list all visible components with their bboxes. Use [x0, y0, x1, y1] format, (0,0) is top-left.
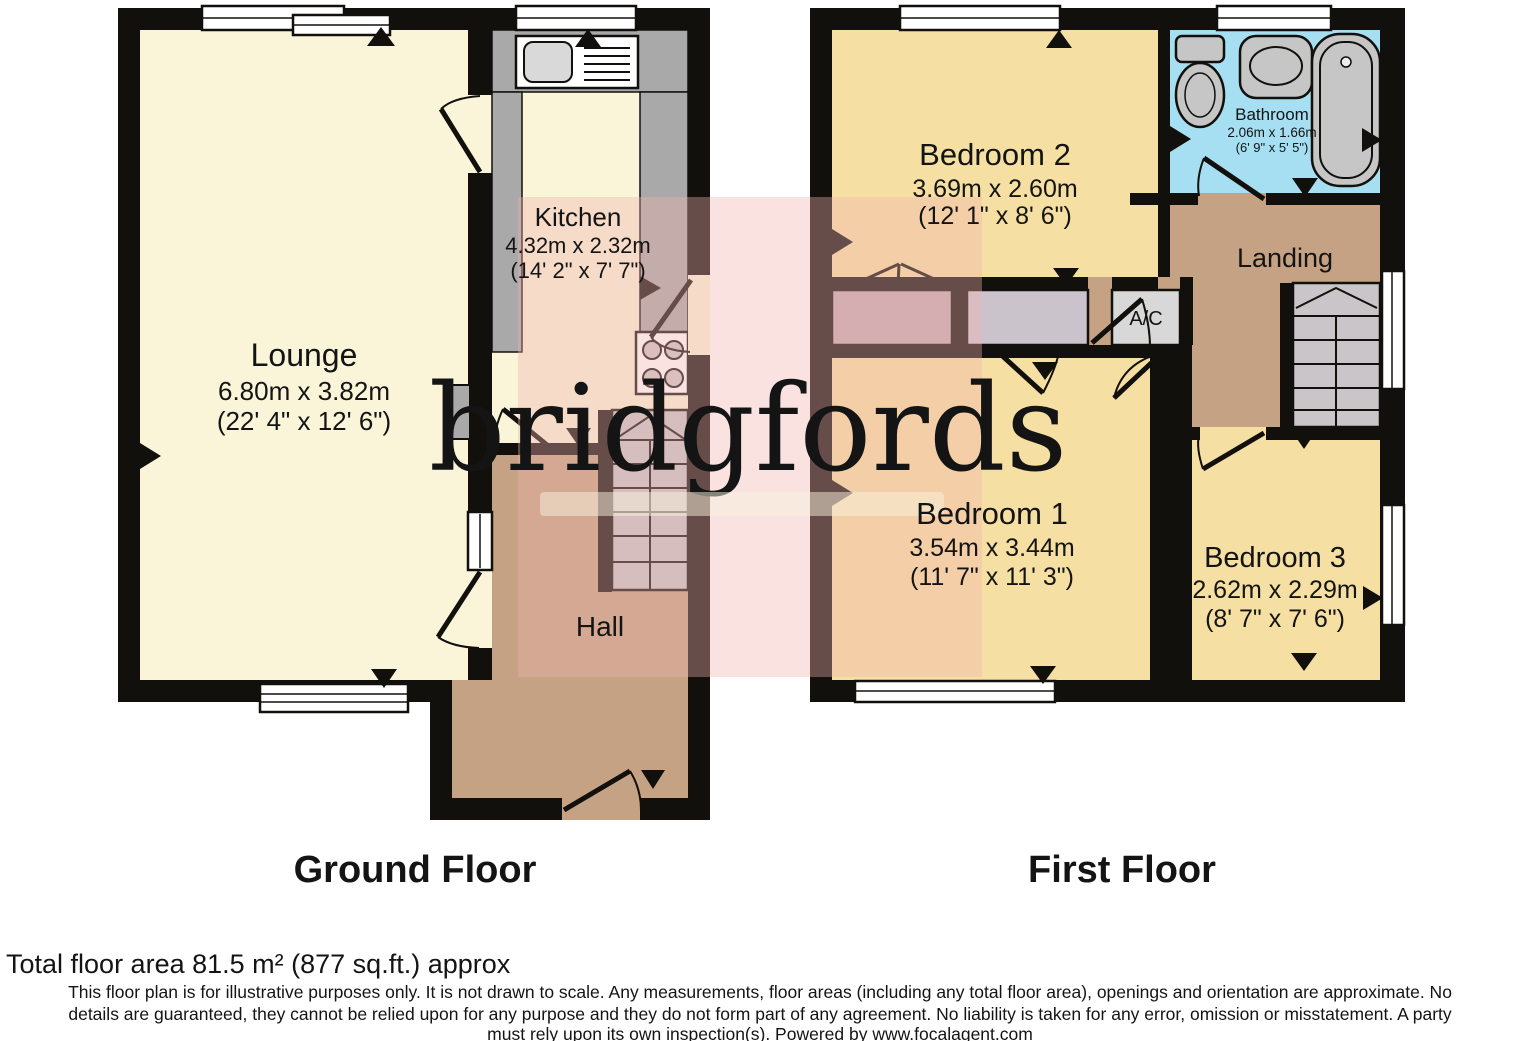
bedroom1-top-wall	[1165, 345, 1192, 358]
disclaimer-line-2: details are guaranteed, they cannot be r…	[68, 1004, 1452, 1024]
window	[855, 681, 1055, 702]
bedroom3-imperial: (8' 7" x 7' 6")	[1205, 605, 1345, 633]
closet-wall	[1112, 277, 1158, 290]
lounge-label: Lounge	[251, 337, 358, 373]
ground-floor-title: Ground Floor	[294, 849, 537, 891]
window	[1217, 6, 1331, 30]
floor-plan-page: bridgfords Lounge 6.80m x 3.82m (22' 4" …	[0, 0, 1520, 1041]
hall-label: Hall	[576, 611, 624, 642]
ac-label: A/C	[1129, 308, 1162, 330]
bedroom3-metric: 2.62m x 2.29m	[1192, 576, 1357, 604]
watermark-underline	[540, 492, 944, 516]
disclaimer-line-3: must rely upon its own inspection(s). Po…	[487, 1024, 1033, 1041]
window	[1382, 271, 1404, 389]
kitchen-imperial: (14' 2" x 7' 7")	[510, 258, 645, 283]
bedroom1-metric: 3.54m x 3.44m	[909, 534, 1074, 562]
window	[1382, 505, 1404, 625]
window	[900, 6, 1060, 30]
bedroom1-label: Bedroom 1	[916, 496, 1068, 531]
bathroom-metric: 2.06m x 1.66m	[1227, 125, 1316, 140]
watermark-text: bridgfords	[429, 360, 1068, 499]
landing-label: Landing	[1237, 243, 1333, 273]
lounge-metric: 6.80m x 3.82m	[218, 376, 390, 406]
window	[516, 6, 636, 30]
kitchen-sink-icon	[516, 36, 638, 88]
kitchen-metric: 4.32m x 2.32m	[505, 233, 651, 258]
kitchen-counter-left	[492, 92, 522, 352]
bedroom2-label: Bedroom 2	[919, 137, 1071, 172]
bedroom1-bedroom3-wall	[1150, 358, 1192, 680]
floor-plan-drawing: bridgfords Lounge 6.80m x 3.82m (22' 4" …	[0, 0, 1520, 1041]
bedroom1-top-wall	[1062, 345, 1120, 358]
window	[293, 15, 390, 35]
closet-wall	[1180, 277, 1193, 345]
corridor-floor	[1158, 277, 1180, 290]
window	[260, 684, 408, 712]
total-floor-area: Total floor area 81.5 m² (877 sq.ft.) ap…	[6, 949, 511, 979]
sink-icon	[1240, 36, 1312, 98]
bathroom-label: Bathroom	[1235, 105, 1309, 124]
staircase-first	[1293, 283, 1380, 427]
bedroom1-imperial: (11' 7" x 11' 3")	[910, 563, 1074, 591]
bedroom2-metric: 3.69m x 2.60m	[912, 175, 1077, 203]
bath-icon	[1312, 34, 1380, 186]
kitchen-label: Kitchen	[535, 202, 622, 232]
disclaimer-line-1: This floor plan is for illustrative purp…	[68, 982, 1452, 1002]
wardrobe	[967, 290, 1088, 345]
first-floor-title: First Floor	[1028, 849, 1216, 891]
stair-wall	[1280, 283, 1293, 427]
bathroom-imperial: (6' 9" x 5' 5")	[1236, 140, 1309, 155]
lounge-imperial: (22' 4" x 12' 6")	[217, 406, 391, 436]
door-opening	[562, 798, 640, 820]
bedroom2-imperial: (12' 1" x 8' 6")	[918, 202, 1072, 230]
bedroom3-label: Bedroom 3	[1204, 542, 1346, 574]
bedroom2-bathroom-wall	[1158, 30, 1170, 277]
toilet-icon	[1176, 36, 1224, 127]
